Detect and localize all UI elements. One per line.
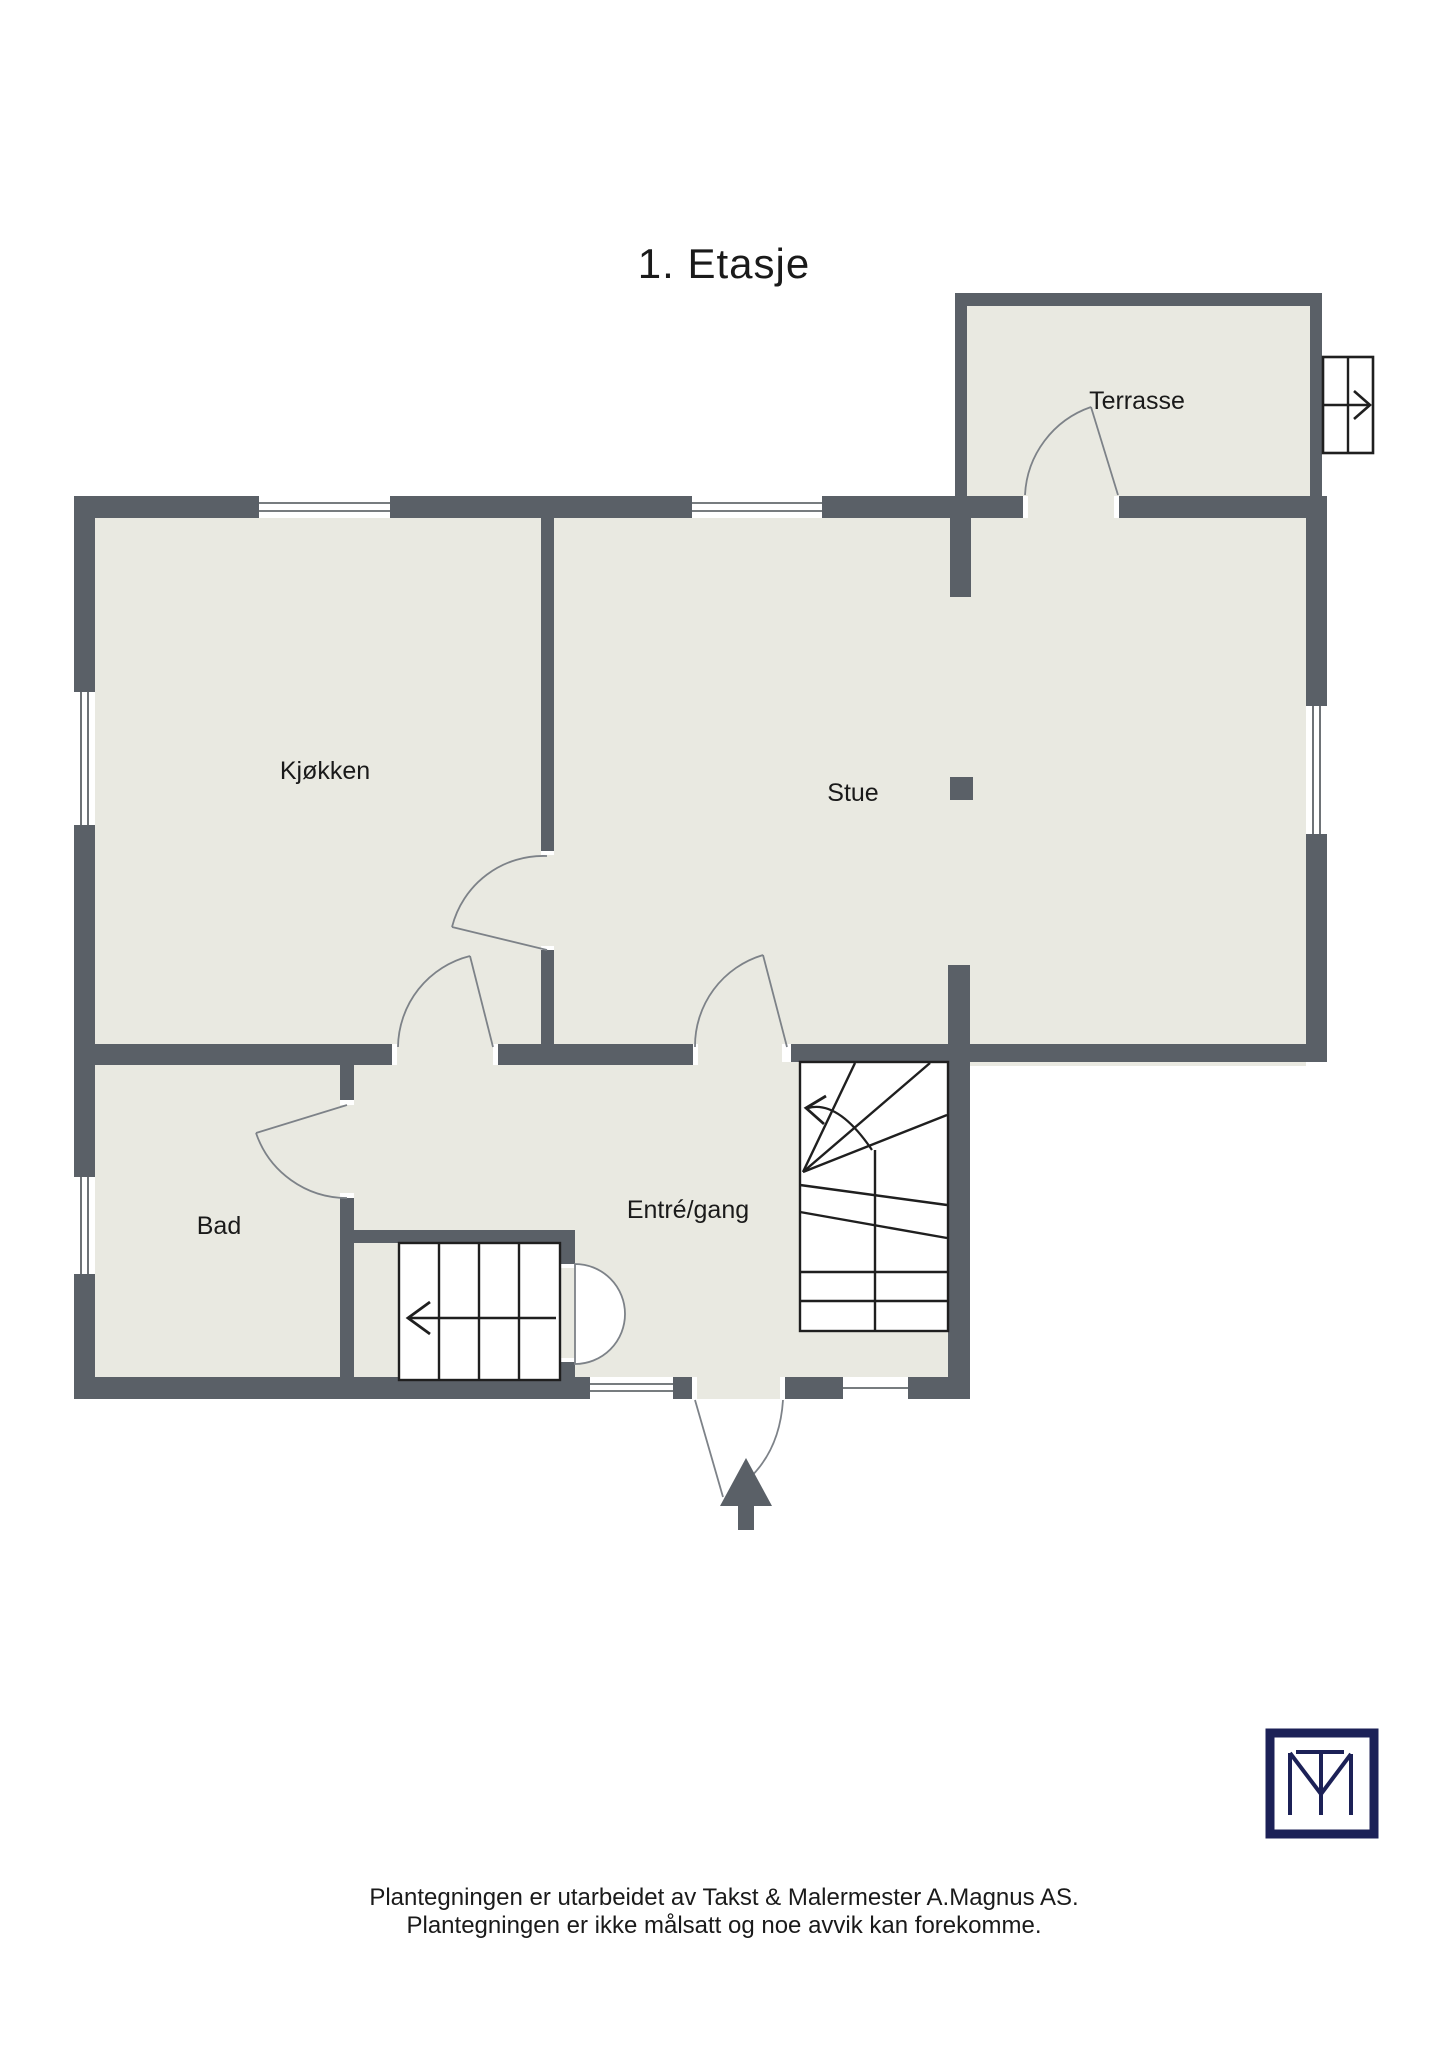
floor-areas [95, 306, 1310, 1399]
wall-divider-kitchen-stue [541, 950, 554, 1044]
floorplan-page: { "title": "1. Etasje", "rooms": { "kjok… [0, 0, 1448, 2048]
wall-divider-bad [340, 1065, 354, 1105]
wall-segment [390, 496, 692, 518]
window-bottom-right [843, 1377, 908, 1399]
room-label-kjokken: Kjøkken [280, 757, 370, 785]
room-label-entre: Entré/gang [627, 1196, 749, 1224]
wall-divider-kitchen-stue [541, 518, 554, 855]
wall-segment [673, 1377, 692, 1399]
window-bad-left [74, 1177, 95, 1274]
wall-terrasse-top [955, 293, 1322, 306]
straight-staircase [399, 1243, 560, 1380]
tm-monogram [1290, 1752, 1351, 1815]
room-label-terrasse: Terrasse [1089, 387, 1185, 415]
wall-segment [822, 496, 1023, 518]
floorplan-drawing: Kjøkken Stue Terrasse Bad Entré/gang [0, 0, 1448, 2048]
wall-segment [785, 1377, 843, 1399]
winder-staircase [800, 1062, 948, 1331]
window-kitchen-left [74, 692, 95, 825]
tm-logo [1270, 1733, 1374, 1834]
window-kitchen-top [259, 496, 390, 518]
wall-stue-stub [950, 518, 971, 597]
wall-stair-right [560, 1243, 575, 1264]
window-bottom-left [590, 1377, 673, 1399]
wall-segment [74, 1044, 397, 1065]
pillar-stue [950, 777, 973, 800]
wall-stair-top [354, 1230, 575, 1243]
wall-terrasse-left [955, 293, 967, 498]
wall-segment [1119, 496, 1320, 518]
room-label-stue: Stue [827, 779, 878, 807]
wall-segment [787, 1044, 1327, 1062]
wall-segment [493, 1044, 693, 1065]
footer-disclaimer: Plantegningen er utarbeidet av Takst & M… [0, 1884, 1448, 1940]
window-stue-right [1306, 706, 1327, 834]
footer-line-1: Plantegningen er utarbeidet av Takst & M… [0, 1884, 1448, 1912]
wall-divider-bad [340, 1198, 354, 1377]
footer-line-2: Plantegningen er ikke målsatt og noe avv… [0, 1912, 1448, 1940]
wall-segment [908, 1377, 970, 1399]
floor-main-upper [95, 516, 1306, 1066]
wall-terrasse-right [1310, 293, 1322, 498]
exterior-stairs-arrow-right-icon [1323, 357, 1373, 453]
wall-entre-right [948, 965, 970, 1399]
window-stue-top [692, 496, 822, 518]
wall-stair-right [560, 1362, 575, 1377]
room-label-bad: Bad [197, 1212, 241, 1240]
entrance-direction-arrow-icon [720, 1458, 772, 1530]
wall-segment [74, 496, 259, 518]
